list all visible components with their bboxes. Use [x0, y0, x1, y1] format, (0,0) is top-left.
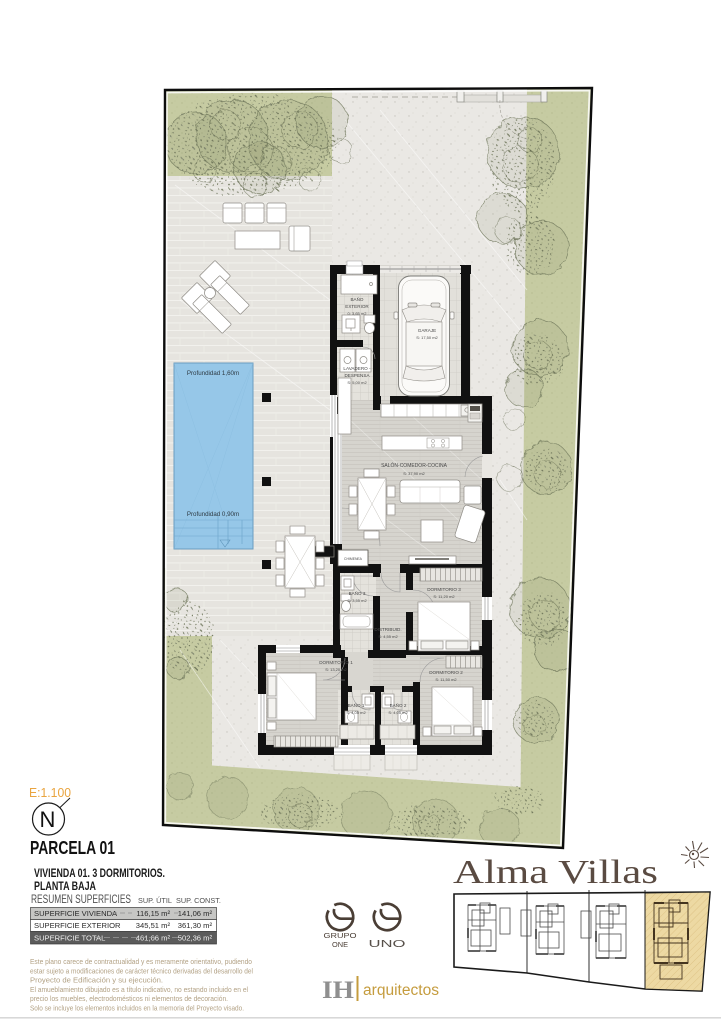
svg-text:S: 4,55 m2: S: 4,55 m2	[378, 634, 398, 639]
svg-text:PLANTA BAJA: PLANTA BAJA	[34, 879, 96, 893]
svg-text:S: 17,50 m2: S: 17,50 m2	[416, 335, 438, 340]
svg-text:Profundidad 0,90m: Profundidad 0,90m	[187, 511, 239, 518]
svg-text:GARAJE: GARAJE	[418, 328, 436, 333]
svg-text:SUPERFICIE EXTERIOR: SUPERFICIE EXTERIOR	[34, 921, 121, 930]
svg-text:DORMITORIO 3: DORMITORIO 3	[427, 587, 461, 592]
svg-text:CHIMENEA: CHIMENEA	[344, 557, 363, 561]
svg-text:estar sujeto a modificaciones: estar sujeto a modificaciones de carácte…	[30, 966, 253, 975]
svg-text:361,30 m²: 361,30 m²	[178, 921, 213, 930]
svg-text:BAÑO 2: BAÑO 2	[390, 702, 407, 708]
svg-text:SALÓN-COMEDOR-COCINA: SALÓN-COMEDOR-COCINA	[381, 462, 448, 469]
svg-text:0: 3,65 m2: 0: 3,65 m2	[348, 311, 368, 316]
svg-text:PARCELA 01: PARCELA 01	[30, 838, 115, 858]
svg-text:El amueblamiento dibujado es a: El amueblamiento dibujado es a título in…	[30, 985, 248, 994]
svg-text:141,06 m²: 141,06 m²	[178, 909, 213, 918]
svg-text:Solo se incluye los elementos: Solo se incluye los elementos incluidos …	[30, 1004, 244, 1013]
svg-text:UNO: UNO	[369, 938, 406, 950]
svg-text:Alma Villas: Alma Villas	[453, 854, 658, 891]
svg-text:461,66 m²: 461,66 m²	[136, 934, 171, 943]
svg-text:S: 5,00 m2: S: 5,00 m2	[347, 380, 367, 385]
svg-text:Este plano carece de contractu: Este plano carece de contractualidad y e…	[30, 957, 252, 966]
svg-text:S: 3,55 m2: S: 3,55 m2	[347, 598, 367, 603]
svg-text:E:1.100: E:1.100	[29, 786, 71, 800]
svg-text:SUP. CONST.: SUP. CONST.	[176, 896, 221, 905]
svg-text:S: 4,05 m2: S: 4,05 m2	[388, 710, 408, 715]
svg-text:Proyecto de Edificación y su e: Proyecto de Edificación y su ejecución.	[30, 976, 163, 985]
svg-text:DISTRIBUID.: DISTRIBUID.	[374, 627, 401, 632]
svg-text:SUPERFICIE VIVIENDA: SUPERFICIE VIVIENDA	[34, 909, 118, 918]
svg-text:VIVIENDA 01. 3 DORMITORIOS.: VIVIENDA 01. 3 DORMITORIOS.	[34, 866, 165, 880]
svg-text:S: 11,50 m2: S: 11,50 m2	[435, 677, 457, 682]
svg-text:Profundidad 1,60m: Profundidad 1,60m	[187, 370, 239, 377]
svg-text:LAVADERO -: LAVADERO -	[343, 366, 371, 371]
svg-text:precio los muebles, electrodom: precio los muebles, electrodomésticos ni…	[30, 994, 228, 1003]
svg-text:S: 37,90 m2: S: 37,90 m2	[403, 471, 425, 476]
svg-text:DORMITORIO 2: DORMITORIO 2	[429, 670, 463, 675]
svg-text:BAÑO 3: BAÑO 3	[349, 590, 366, 596]
svg-text:arquitectos: arquitectos	[363, 982, 439, 999]
svg-text:S: 13,20 m2: S: 13,20 m2	[325, 667, 347, 672]
svg-text:502,36 m²: 502,36 m²	[178, 934, 213, 943]
svg-text:BAÑO: BAÑO	[350, 296, 363, 302]
svg-text:S: 4,05 m2: S: 4,05 m2	[346, 710, 366, 715]
svg-text:N: N	[40, 807, 56, 832]
svg-text:EXTERIOR: EXTERIOR	[345, 304, 369, 309]
svg-text:SUP. ÚTIL: SUP. ÚTIL	[138, 896, 172, 905]
svg-text:BAÑO 1: BAÑO 1	[348, 702, 365, 708]
svg-text:IH: IH	[322, 977, 355, 1004]
svg-text:DORMITORIO 1: DORMITORIO 1	[319, 660, 353, 665]
svg-text:GRUPO: GRUPO	[324, 931, 357, 940]
svg-text:ONE: ONE	[332, 940, 348, 949]
svg-text:116,15 m²: 116,15 m²	[136, 909, 170, 918]
svg-text:S: 11,20 m2: S: 11,20 m2	[433, 594, 455, 599]
svg-text:DESPENSA: DESPENSA	[344, 373, 370, 378]
svg-text:345,51 m²: 345,51 m²	[136, 921, 171, 930]
svg-text:RESUMEN SUPERFICIES: RESUMEN SUPERFICIES	[31, 894, 131, 906]
svg-text:SUPERFICIE TOTAL: SUPERFICIE TOTAL	[34, 934, 105, 943]
